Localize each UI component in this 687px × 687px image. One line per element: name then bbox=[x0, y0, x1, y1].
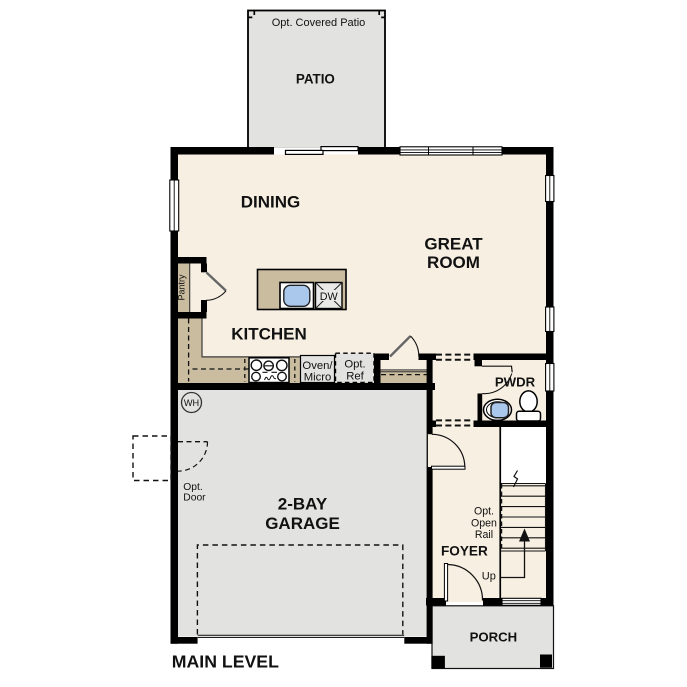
svg-text:FOYER: FOYER bbox=[441, 543, 488, 558]
svg-text:Opt.: Opt. bbox=[344, 359, 365, 371]
svg-text:Oven/: Oven/ bbox=[302, 360, 333, 372]
svg-text:Micro: Micro bbox=[304, 372, 332, 384]
svg-text:Up: Up bbox=[482, 571, 496, 583]
svg-text:Opt. Covered Patio: Opt. Covered Patio bbox=[272, 17, 366, 29]
svg-text:PORCH: PORCH bbox=[470, 630, 518, 645]
svg-text:KITCHEN: KITCHEN bbox=[231, 325, 307, 344]
svg-text:Door: Door bbox=[183, 493, 206, 504]
svg-text:Opt.: Opt. bbox=[183, 482, 202, 493]
svg-text:DINING: DINING bbox=[241, 193, 301, 212]
svg-text:MAIN LEVEL: MAIN LEVEL bbox=[172, 652, 279, 672]
svg-text:GARAGE: GARAGE bbox=[265, 514, 340, 533]
svg-text:Rail: Rail bbox=[475, 529, 493, 541]
svg-text:WH: WH bbox=[184, 398, 199, 408]
svg-text:DW: DW bbox=[320, 291, 339, 303]
svg-text:GREAT: GREAT bbox=[424, 235, 483, 254]
svg-text:Ref: Ref bbox=[346, 371, 364, 383]
svg-text:ROOM: ROOM bbox=[427, 253, 480, 272]
svg-text:Opt.: Opt. bbox=[474, 506, 494, 518]
svg-text:2-BAY: 2-BAY bbox=[278, 495, 328, 514]
svg-text:Open: Open bbox=[471, 517, 497, 529]
svg-text:Pantry: Pantry bbox=[177, 274, 187, 301]
svg-text:PWDR: PWDR bbox=[495, 375, 536, 390]
svg-text:PATIO: PATIO bbox=[296, 72, 335, 87]
